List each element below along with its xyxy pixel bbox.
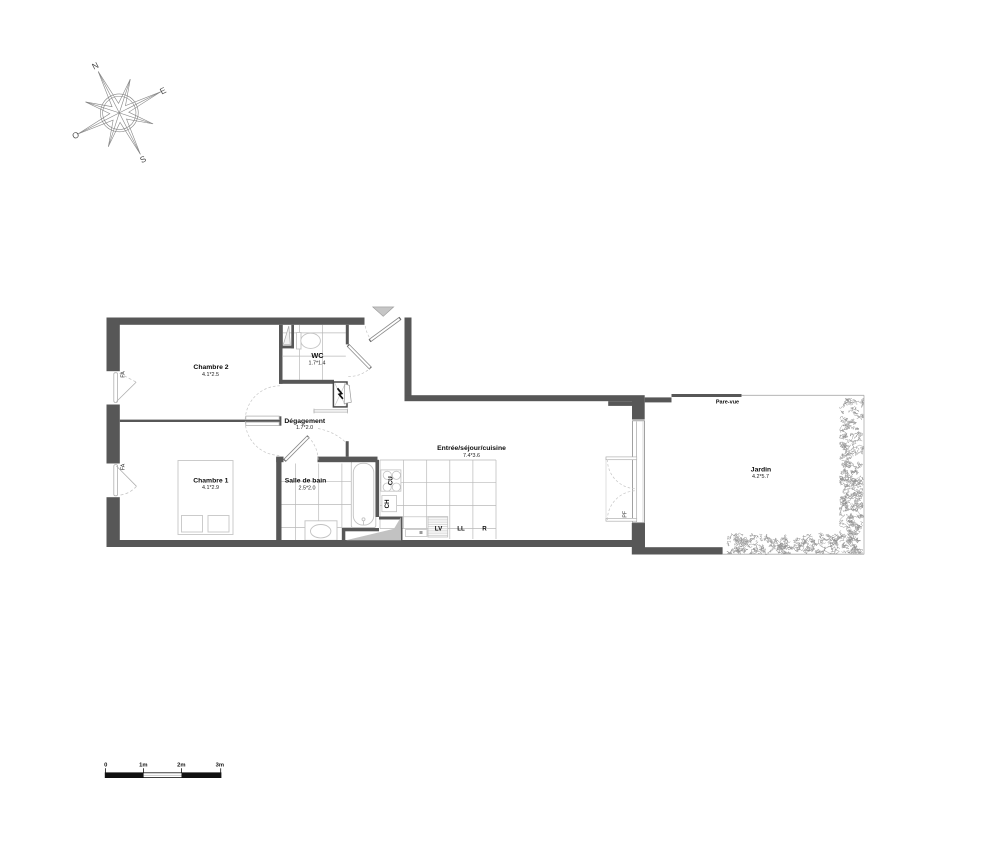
svg-text:0: 0: [104, 762, 107, 768]
svg-text:Dégagement: Dégagement: [284, 418, 326, 425]
svg-text:7.4*3.6: 7.4*3.6: [463, 453, 480, 459]
svg-text:3m: 3m: [216, 762, 224, 768]
svg-text:1m: 1m: [139, 762, 147, 768]
svg-text:Pare-vue: Pare-vue: [716, 399, 739, 405]
svg-text:R: R: [482, 526, 487, 533]
svg-text:1.7*2.0: 1.7*2.0: [296, 425, 313, 431]
svg-text:Jardin: Jardin: [751, 466, 771, 473]
svg-text:Chambre 1: Chambre 1: [193, 477, 228, 484]
svg-text:4.2*5.7: 4.2*5.7: [752, 474, 769, 480]
svg-text:FA: FA: [120, 463, 126, 470]
svg-text:CU: CU: [387, 476, 394, 485]
svg-text:PF: PF: [622, 511, 628, 518]
svg-text:2.5*2.0: 2.5*2.0: [298, 486, 315, 492]
svg-text:LV: LV: [435, 526, 443, 533]
svg-text:WC: WC: [311, 351, 324, 360]
svg-text:2m: 2m: [177, 762, 185, 768]
svg-text:Chambre 2: Chambre 2: [193, 364, 228, 371]
svg-text:4.1*2.5: 4.1*2.5: [202, 372, 219, 378]
svg-text:4.1*2.9: 4.1*2.9: [202, 485, 219, 491]
svg-text:Salle de bain: Salle de bain: [285, 477, 327, 484]
svg-text:LL: LL: [457, 526, 465, 533]
svg-text:CH: CH: [384, 499, 391, 508]
svg-text:Entrée/séjour/cuisine: Entrée/séjour/cuisine: [437, 445, 506, 452]
svg-text:1.7*1.4: 1.7*1.4: [308, 361, 325, 367]
svg-text:FA: FA: [120, 371, 126, 378]
